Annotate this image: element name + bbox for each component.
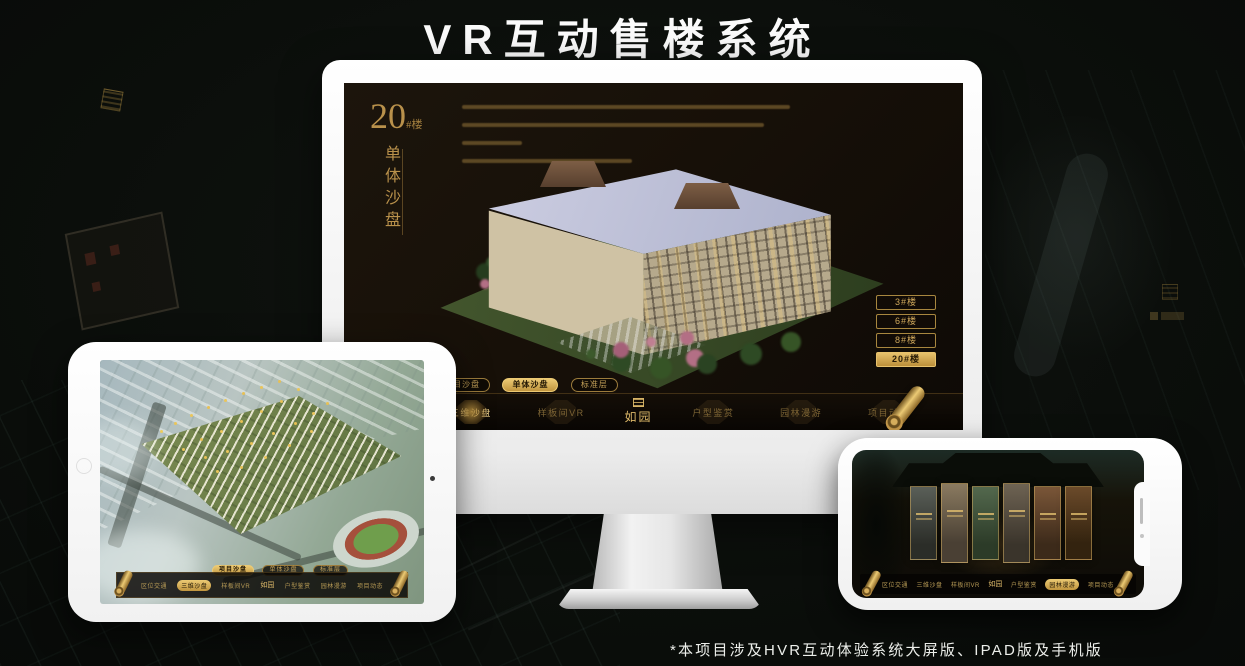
description-line xyxy=(462,123,764,127)
phone-screen: 区位交通 三维沙盘 样板间VR 如园 户型鉴赏 园林漫游 项目动态 xyxy=(852,450,1144,598)
gallery-card[interactable] xyxy=(972,486,999,560)
nav-item-floorplans[interactable]: 户型鉴赏 xyxy=(1011,580,1037,589)
camera-icon xyxy=(430,476,435,481)
footer-note: *本项目涉及HVR互动体验系统大屏版、IPAD版及手机版 xyxy=(670,639,1103,660)
gallery-card[interactable] xyxy=(1003,483,1030,563)
background-aerial-texture xyxy=(985,70,1245,490)
background-seal xyxy=(1162,284,1178,300)
tab-single-sandbox[interactable]: 单体沙盘 xyxy=(502,378,558,392)
brand-logo[interactable]: 如园 xyxy=(988,579,1002,589)
camera-icon xyxy=(1140,534,1144,538)
description-line xyxy=(462,105,790,109)
phone-notch xyxy=(1134,482,1150,566)
gallery-cards xyxy=(910,486,1092,563)
nav-item-floorplans[interactable]: 户型鉴赏 xyxy=(686,402,740,423)
building-roof-tower xyxy=(540,161,606,187)
brand-logo-text: 如园 xyxy=(624,410,652,424)
brand-seal-icon xyxy=(633,398,644,407)
divider xyxy=(402,149,403,235)
monitor-stand-neck xyxy=(592,514,723,594)
tree-cluster xyxy=(586,349,596,359)
nav-item-floorplans[interactable]: 户型鉴赏 xyxy=(285,581,311,590)
nav-item-vr-room[interactable]: 样板间VR xyxy=(951,580,980,589)
brand-logo[interactable]: 如园 xyxy=(260,580,274,590)
nav-item-location[interactable]: 区位交通 xyxy=(882,580,908,589)
phone-device: 区位交通 三维沙盘 样板间VR 如园 户型鉴赏 园林漫游 项目动态 xyxy=(838,438,1182,610)
brand-logo[interactable]: 如园 xyxy=(624,398,652,426)
page-title: VR互动售楼系统 xyxy=(0,6,1245,67)
background-certificate-frame xyxy=(65,211,180,330)
stage: VR互动售楼系统 20#楼 单体沙盘 xyxy=(0,0,1245,666)
gallery-card[interactable] xyxy=(910,486,937,560)
building-model-view[interactable] xyxy=(436,139,888,407)
nav-item-garden-tour[interactable]: 园林漫游 xyxy=(774,402,828,423)
nav-item-vr-room[interactable]: 样板间VR xyxy=(221,581,250,590)
gallery-card[interactable] xyxy=(1034,486,1061,560)
nav-item-garden-tour[interactable]: 园林漫游 xyxy=(321,581,347,590)
nav-item-location[interactable]: 区位交通 xyxy=(141,581,167,590)
flower-tree-cluster xyxy=(646,337,656,347)
section-subtitle: 单体沙盘 xyxy=(378,145,402,233)
building-select-button-active[interactable]: 20#楼 xyxy=(876,352,936,367)
phone-navbar: 区位交通 三维沙盘 样板间VR 如园 户型鉴赏 园林漫游 项目动态 xyxy=(860,574,1136,594)
gallery-card[interactable] xyxy=(1065,486,1092,560)
speaker-icon xyxy=(1140,498,1143,524)
tab-standard-floor[interactable]: 标准层 xyxy=(571,378,618,392)
building-select-button[interactable]: 6#楼 xyxy=(876,314,936,329)
building-number-markers xyxy=(160,430,163,433)
nav-item-sandbox[interactable]: 三维沙盘 xyxy=(177,580,211,591)
building-select-button[interactable]: 8#楼 xyxy=(876,333,936,348)
building-number: 20 xyxy=(370,96,406,136)
nav-item-garden-tour[interactable]: 园林漫游 xyxy=(1045,579,1079,590)
nav-item-project-news[interactable]: 项目动态 xyxy=(1088,580,1114,589)
ipad-device: 项目沙盘 单体沙盘 标准层 区位交通 三维沙盘 样板间VR 如园 户型鉴赏 园林… xyxy=(68,342,456,622)
building-number-heading: 20#楼 xyxy=(370,95,423,137)
gallery-card[interactable] xyxy=(941,483,968,563)
view-tabs: 项目沙盘 单体沙盘 标准层 xyxy=(434,374,626,392)
nav-item-vr-room[interactable]: 样板间VR xyxy=(532,402,591,423)
ipad-navbar: 区位交通 三维沙盘 样板间VR 如园 户型鉴赏 园林漫游 项目动态 xyxy=(116,572,408,598)
monitor-stand-base xyxy=(556,589,762,609)
background-gold-logo xyxy=(1150,312,1184,320)
nav-item-project-news[interactable]: 项目动态 xyxy=(357,581,383,590)
pavilion-silhouette xyxy=(892,453,1104,487)
ipad-screen: 项目沙盘 单体沙盘 标准层 区位交通 三维沙盘 样板间VR 如园 户型鉴赏 园林… xyxy=(100,360,424,604)
nav-item-sandbox[interactable]: 三维沙盘 xyxy=(917,580,943,589)
background-seal xyxy=(100,88,123,111)
building-number-suffix: #楼 xyxy=(406,119,423,131)
building-select-button[interactable]: 3#楼 xyxy=(876,295,936,310)
home-button[interactable] xyxy=(76,458,92,474)
